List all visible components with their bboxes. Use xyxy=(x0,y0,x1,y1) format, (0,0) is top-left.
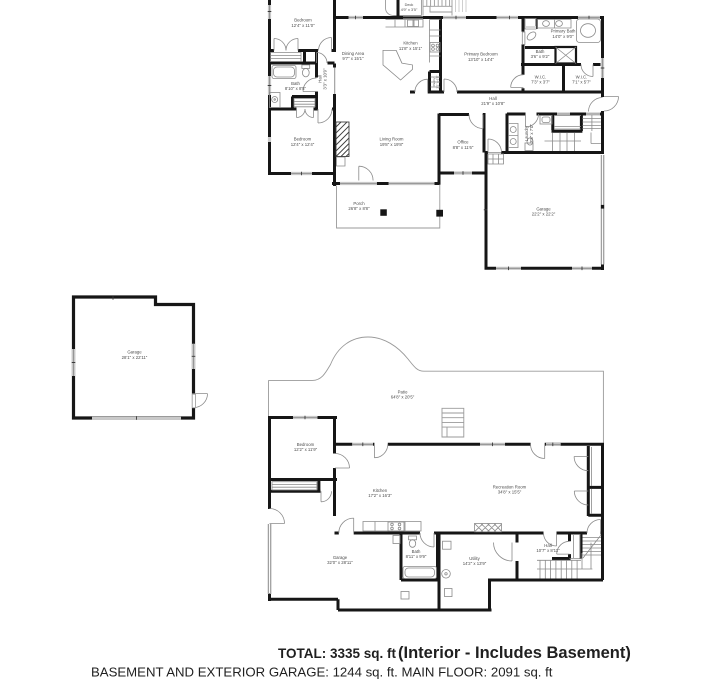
svg-text:3'8" x 7'0": 3'8" x 7'0" xyxy=(529,124,534,143)
svg-text:14'2" x 13'9": 14'2" x 13'9" xyxy=(463,561,487,566)
svg-text:26'8" x 8'8": 26'8" x 8'8" xyxy=(348,206,370,211)
svg-text:14'0" x 9'0": 14'0" x 9'0" xyxy=(552,34,574,39)
svg-text:13'10" x 14'4": 13'10" x 14'4" xyxy=(468,57,494,62)
svg-text:34'8" x 15'5": 34'8" x 15'5" xyxy=(498,490,522,495)
svg-text:Living Room: Living Room xyxy=(380,137,404,142)
svg-text:4'9" x 3'5": 4'9" x 3'5" xyxy=(401,8,418,12)
svg-text:Primary Bath: Primary Bath xyxy=(551,29,576,34)
svg-text:17'2" x 16'3": 17'2" x 16'3" xyxy=(368,493,392,498)
svg-text:Garage: Garage xyxy=(127,350,142,355)
svg-text:Kitchen: Kitchen xyxy=(403,41,418,46)
svg-text:TOTAL: 3335 sq. ft: TOTAL: 3335 sq. ft xyxy=(278,646,397,661)
svg-text:3'3" x 10'9": 3'3" x 10'9" xyxy=(323,68,328,90)
svg-text:8'10" x 8'5": 8'10" x 8'5" xyxy=(285,86,307,91)
svg-text:8'11" x 9'9": 8'11" x 9'9" xyxy=(406,554,427,559)
svg-text:12'2" x 11'9": 12'2" x 11'9" xyxy=(294,447,318,452)
svg-text:22'2" x 22'2": 22'2" x 22'2" xyxy=(532,212,556,217)
svg-text:9'7" x 15'1": 9'7" x 15'1" xyxy=(342,56,364,61)
svg-text:12'4" x 11'0": 12'4" x 11'0" xyxy=(291,23,315,28)
svg-text:10'7" x 8'11": 10'7" x 8'11" xyxy=(536,548,560,553)
svg-text:11'8" x 15'1": 11'8" x 15'1" xyxy=(399,46,423,51)
svg-text:Bedroom: Bedroom xyxy=(294,137,312,142)
svg-text:32'0" x 28'11": 32'0" x 28'11" xyxy=(327,560,353,565)
svg-text:Bedroom: Bedroom xyxy=(294,18,312,23)
svg-text:28'1" x 22'11": 28'1" x 22'11" xyxy=(122,355,148,360)
svg-text:Primary Bedroom: Primary Bedroom xyxy=(464,52,498,57)
svg-text:Deck: Deck xyxy=(405,3,414,7)
svg-text:8'8" x 11'6": 8'8" x 11'6" xyxy=(453,145,474,150)
svg-text:21'9" x 10'8": 21'9" x 10'8" xyxy=(481,101,505,106)
svg-text:7'1" x 5'7": 7'1" x 5'7" xyxy=(572,80,591,85)
svg-text:12'4" x 12'4": 12'4" x 12'4" xyxy=(291,142,315,147)
svg-text:19'8" x 19'8": 19'8" x 19'8" xyxy=(380,142,404,147)
svg-text:64'8" x 20'5": 64'8" x 20'5" xyxy=(391,395,415,400)
svg-text:BASEMENT AND EXTERIOR GARAGE:: BASEMENT AND EXTERIOR GARAGE: 1244 sq. f… xyxy=(91,665,553,680)
svg-text:(Interior - Includes Basement): (Interior - Includes Basement) xyxy=(398,644,631,662)
svg-text:2'1" x 6'5": 2'1" x 6'5" xyxy=(436,75,440,88)
svg-text:Office: Office xyxy=(457,140,469,145)
svg-text:3'6" x 9'2": 3'6" x 9'2" xyxy=(531,54,550,59)
svg-text:7'3" x 3'7": 7'3" x 3'7" xyxy=(531,80,550,85)
